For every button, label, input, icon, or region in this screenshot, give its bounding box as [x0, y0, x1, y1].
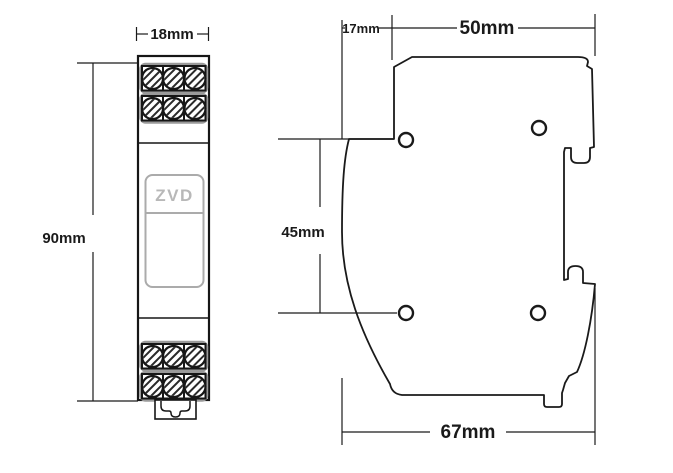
terminal-block-bottom — [141, 342, 208, 401]
dim-label-side-top-depth: 17mm — [342, 21, 380, 36]
front-view: ZVD 18mm 90mm — [42, 26, 209, 419]
terminal-row — [141, 94, 208, 123]
side-view: 17mm 50mm 45mm 67mm — [278, 14, 595, 445]
mounting-hole — [531, 306, 545, 320]
terminal-row — [141, 64, 208, 93]
terminal-row — [141, 342, 208, 371]
din-clip — [155, 400, 196, 419]
side-profile-outline — [342, 57, 595, 407]
dim-label-front-height: 90mm — [42, 230, 85, 247]
dim-label-hole-spacing: 45mm — [281, 224, 324, 241]
technical-drawing-page: ZVD 18mm 90mm — [0, 0, 673, 473]
dim-label-overall-depth: 67mm — [441, 422, 496, 443]
module-label-text: ZVD — [155, 186, 194, 205]
terminal-row — [141, 372, 208, 401]
dim-label-side-width: 50mm — [460, 18, 515, 39]
mounting-hole — [399, 306, 413, 320]
mounting-hole — [532, 121, 546, 135]
dimension-front-height — [77, 63, 138, 401]
dim-label-front-width: 18mm — [150, 26, 193, 43]
dimension-drawing: ZVD 18mm 90mm — [0, 0, 673, 473]
terminal-block-top — [141, 64, 208, 123]
mounting-hole — [399, 133, 413, 147]
